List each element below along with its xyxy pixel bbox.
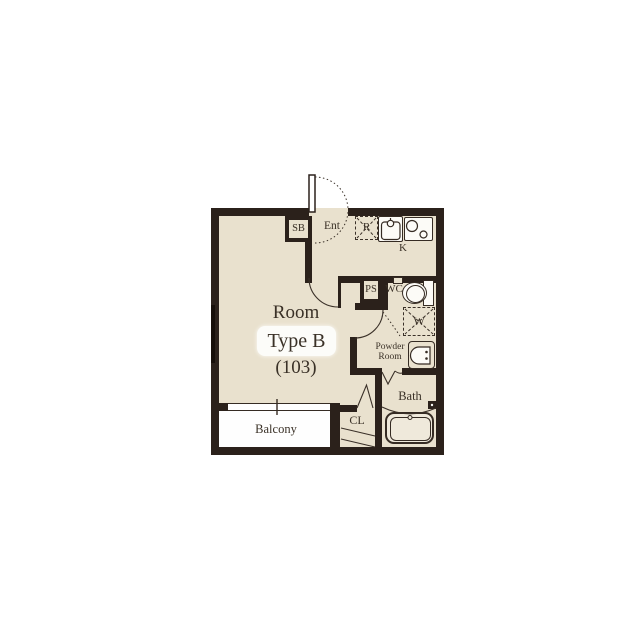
- closet-fold-door: [357, 385, 373, 408]
- left-window: [211, 305, 215, 363]
- powder-room-label: Powder Room: [373, 342, 407, 364]
- wall-top-left: [211, 208, 309, 216]
- room-type-label: Type B: [257, 328, 336, 354]
- entrance-door-arc-out: [315, 177, 348, 210]
- closet-shelf-line1: [341, 428, 375, 436]
- entrance-door-leaf: [309, 175, 315, 212]
- wall-bath-top-left: [350, 368, 382, 375]
- shoe-box: SB: [285, 216, 312, 242]
- entrance-label: Ent: [314, 220, 350, 233]
- bathtub-inner: [390, 417, 431, 441]
- closet-label: CL: [346, 414, 368, 427]
- wall-bottom: [211, 447, 444, 455]
- wall-bath-top-right: [402, 368, 437, 375]
- floorplan-canvas: SB PS R W: [0, 0, 640, 640]
- shoe-box-label: SB: [292, 223, 305, 234]
- wall-under-ps: [355, 303, 382, 310]
- balcony-window: [228, 403, 330, 411]
- balcony-label: Balcony: [240, 423, 312, 437]
- room-door-leaf: [338, 278, 341, 308]
- refrigerator-label: R: [362, 222, 371, 234]
- powder-sink: [408, 341, 435, 369]
- wall-window-left-stub: [211, 403, 228, 411]
- kitchen-label: K: [395, 243, 411, 255]
- bath-label: Bath: [395, 390, 425, 404]
- floorplan: SB PS R W: [211, 208, 444, 455]
- kitchen-sink-unit: [378, 216, 403, 242]
- pipe-space-box: PS: [360, 277, 382, 303]
- wall-right: [436, 208, 444, 455]
- bath-wall-fixture: [428, 401, 436, 409]
- room-label: Room: [256, 303, 336, 323]
- wall-balcony-right: [330, 403, 340, 455]
- bath-fold-door-arc: [395, 371, 402, 373]
- powder-door-arc: [355, 310, 383, 338]
- powder-room-label-line2: Room: [378, 353, 401, 363]
- wc-label: WC: [383, 284, 405, 296]
- wall-top-right: [348, 208, 444, 216]
- room-number-label: (103): [256, 358, 336, 378]
- washer-space: W: [403, 307, 435, 336]
- wall-entry-room: [305, 238, 312, 283]
- washer-label: W: [412, 315, 425, 328]
- wall-cl-bath: [375, 375, 382, 447]
- refrigerator-space: R: [355, 216, 378, 240]
- kitchen-stove: [404, 217, 433, 241]
- toilet-bowl-inner: [406, 285, 425, 303]
- wall-cl-top-stub: [340, 405, 357, 412]
- pipe-space-label: PS: [365, 284, 377, 295]
- closet-shelf-line2: [341, 439, 375, 447]
- bath-fold-door: [382, 371, 395, 384]
- powder-door-arc-dotted: [383, 312, 400, 336]
